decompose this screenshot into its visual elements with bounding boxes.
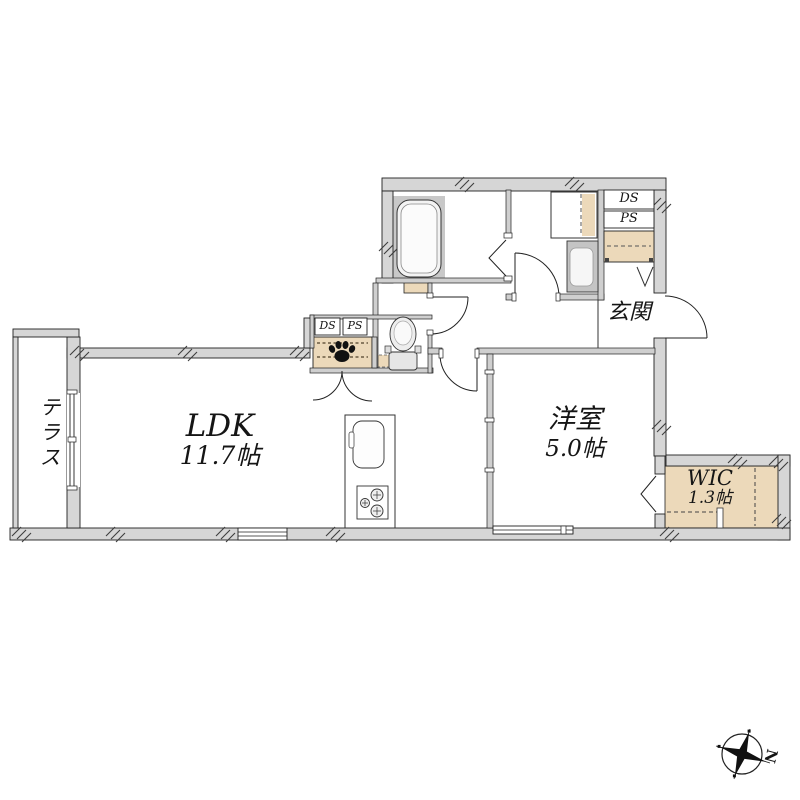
ldk-south-window bbox=[238, 528, 287, 540]
floor-plan-drawing bbox=[0, 0, 800, 800]
washroom-door-swing-icon bbox=[515, 253, 559, 297]
washing-machine-pan-icon bbox=[551, 192, 597, 238]
wic-folding-door-icon bbox=[641, 476, 656, 512]
door-jambs bbox=[427, 293, 560, 335]
storage-double-door-icon bbox=[313, 371, 372, 401]
pipe-space-label-entrance: PS bbox=[604, 212, 654, 226]
kitchen-counter bbox=[345, 415, 395, 528]
pipe-space-label-mid: PS bbox=[343, 320, 367, 332]
entrance-label: 玄関 bbox=[600, 301, 658, 324]
bedroom-room-label: 洋室 bbox=[505, 406, 645, 434]
bathroom-folding-door-icon bbox=[489, 233, 512, 281]
ldk-room-label: LDK bbox=[150, 410, 290, 443]
wic-area-label: 1.3帖 bbox=[660, 490, 760, 508]
duct-space-label-mid: DS bbox=[315, 320, 340, 332]
windows bbox=[67, 390, 573, 540]
terrace-label: テラス bbox=[24, 396, 60, 546]
compass-needle bbox=[720, 732, 766, 776]
toilet-door-swing-icon bbox=[431, 297, 468, 334]
ldk-door-swing-icon bbox=[439, 349, 479, 391]
kitchen-sink-icon bbox=[349, 421, 384, 468]
duct-space-label-entrance: DS bbox=[604, 192, 654, 206]
wic-room-label: WIC bbox=[660, 467, 760, 489]
floor-plan: LDK 11.7帖 洋室 5.0帖 玄関 WIC 1.3帖 テラス DS PS … bbox=[0, 0, 800, 800]
bedroom-area-label: 5.0帖 bbox=[505, 437, 645, 461]
gas-stove-icon bbox=[357, 486, 388, 519]
toilet-icon bbox=[385, 317, 421, 370]
ldk-area-label: 11.7帖 bbox=[150, 443, 290, 469]
shoe-cabinet-icon bbox=[604, 231, 654, 286]
front-door-swing-icon bbox=[665, 296, 707, 338]
bathtub-icon bbox=[397, 200, 441, 277]
bedroom-south-window bbox=[493, 526, 573, 534]
terrace-sliding-door bbox=[67, 390, 80, 490]
washbasin-icon bbox=[567, 241, 598, 292]
